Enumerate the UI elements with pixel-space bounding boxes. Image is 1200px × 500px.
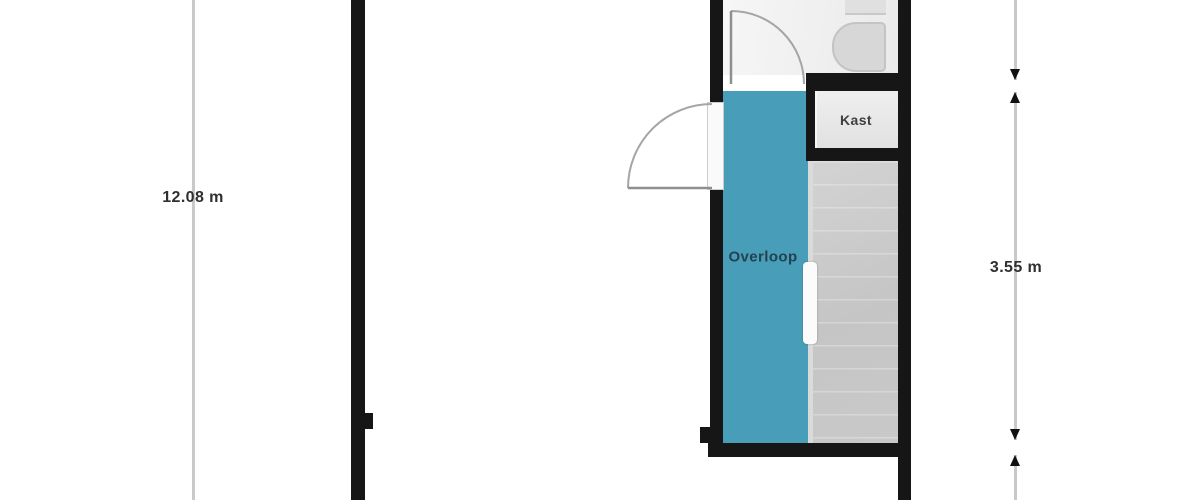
wall-stub-bottom: [700, 427, 712, 443]
kast-south-wall: [806, 148, 898, 161]
toilet-icon: [832, 22, 886, 72]
unit-wall-left-lower: [710, 188, 723, 457]
door-swings: [0, 0, 1200, 500]
wall-stub-left: [364, 413, 373, 429]
dimension-arrow-up-icon: [1010, 92, 1020, 103]
closet-kast-label: Kast: [840, 112, 872, 128]
room-overloop: [722, 91, 808, 443]
overloop-door-opening: [707, 102, 724, 190]
dimension-arrow-down-icon: [1010, 429, 1020, 440]
overloop-door-arc: [628, 104, 712, 188]
stairs-railing: [803, 262, 817, 344]
dimension-arrow-down-icon: [1010, 69, 1020, 80]
unit-wall-left-upper: [710, 0, 723, 103]
left-dimension-label: 12.08 m: [162, 189, 224, 207]
toilet-cistern-icon: [845, 0, 886, 15]
left-dimension-line: [192, 0, 195, 500]
outer-wall-left: [351, 0, 365, 500]
bathroom-door-threshold: [723, 75, 806, 91]
right-dimension-line-top: [1014, 0, 1017, 80]
dimension-arrow-up-icon: [1010, 455, 1020, 466]
unit-wall-bottom: [708, 443, 911, 457]
room-overloop-label: Overloop: [728, 249, 797, 266]
bathroom-south-wall: [806, 73, 898, 91]
floorplan-canvas: 12.08 m 3.55 m Overloop Kast: [0, 0, 1200, 500]
unit-wall-right: [898, 0, 911, 500]
stairs-area: [808, 161, 898, 443]
right-dimension-label: 3.55 m: [990, 259, 1042, 277]
